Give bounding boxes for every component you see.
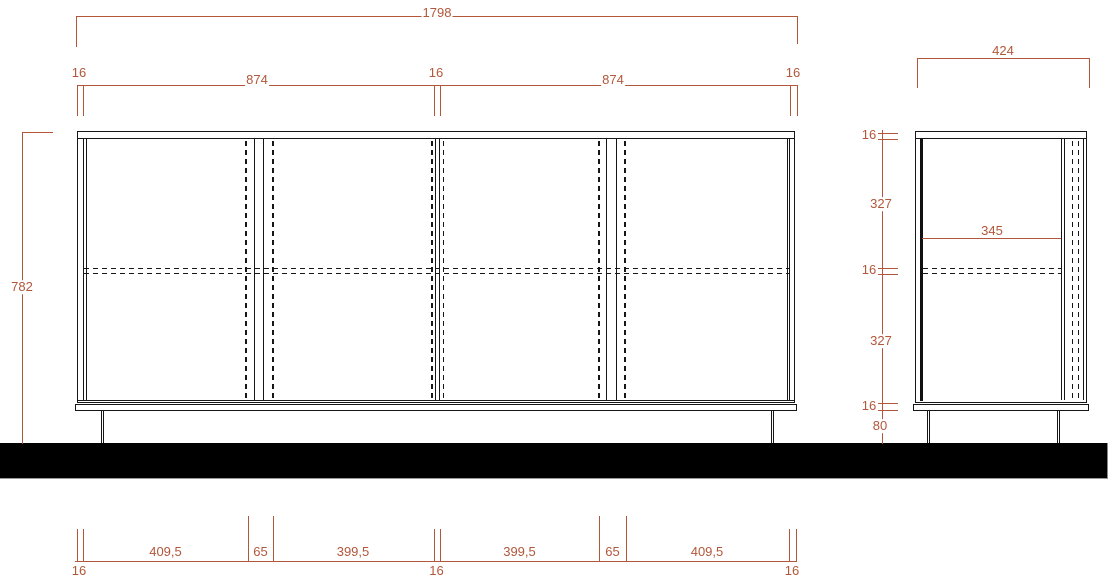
front-door4-right-edge: [787, 139, 788, 400]
dim-label-side-bottom-16: 16: [861, 399, 877, 413]
dim-tick-side-3b: [878, 410, 898, 411]
front-base-band: [75, 404, 797, 411]
front-centre-divider-right: [439, 139, 440, 400]
front-door3-right-edge: [606, 139, 607, 400]
dim-ext-depth-right: [1089, 58, 1090, 88]
front-door1-right-edge: [254, 139, 255, 400]
dim-tick-side-1b: [878, 139, 898, 140]
dim-ext-top-c1: [790, 85, 791, 116]
dim-ext-top-b1: [434, 85, 435, 116]
dim-label-side-lower-327: 327: [869, 334, 893, 348]
front-right-leg: [771, 410, 774, 443]
dim-ext-overall-left: [76, 16, 77, 47]
dim-label-top-874-right: 874: [601, 73, 625, 87]
dim-label-door1-width: 409,5: [148, 545, 183, 559]
dim-label-door2-width: 399,5: [336, 545, 371, 559]
front-shelf-hidden-line-top: [84, 268, 789, 270]
floor-line: [0, 443, 1108, 479]
dim-ext-bot-gap1r: [273, 516, 274, 561]
side-hidden-edge-1: [1072, 141, 1074, 400]
dim-label-gap1-width: 65: [252, 545, 268, 559]
front-door1-left-edge: [86, 139, 87, 400]
side-back-leg: [927, 410, 930, 443]
dim-label-side-shelf-16: 16: [861, 263, 877, 277]
dim-label-bot-16-right: 16: [784, 564, 800, 578]
side-back-panel: [920, 139, 923, 401]
dim-label-side-upper-327: 327: [869, 197, 893, 211]
dim-ext-overall-right: [797, 16, 798, 44]
front-hidden-edge-3: [431, 141, 433, 400]
front-centre-divider-left: [435, 139, 436, 400]
dim-label-top-16-centre: 16: [428, 66, 444, 80]
dim-ext-depth-left: [917, 58, 918, 88]
dim-label-door3-width: 399,5: [502, 545, 537, 559]
dim-ext-bot-b1: [434, 529, 435, 561]
front-hidden-edge-1: [245, 141, 247, 400]
side-base-band: [913, 404, 1089, 411]
dim-ext-bot-gap1l: [248, 516, 249, 561]
dim-label-bot-16-left: 16: [71, 564, 87, 578]
front-hidden-edge-6: [624, 141, 626, 400]
drawing-canvas: 1798 16 874 16 874 16 782 409,5 65 399,5…: [0, 0, 1113, 582]
dim-ext-top-a1: [77, 85, 78, 116]
dim-ext-bot-b2: [440, 529, 441, 561]
dim-label-door4-width: 409,5: [690, 545, 725, 559]
side-front-leg: [1057, 410, 1060, 443]
dim-ext-bot-a1: [77, 529, 78, 561]
dim-tick-side-2a: [878, 268, 898, 269]
side-hidden-edge-2: [1078, 141, 1080, 400]
front-door4-left-edge: [616, 139, 617, 400]
dim-label-overall-width: 1798: [422, 6, 453, 20]
front-hidden-edge-4: [443, 141, 445, 400]
dim-label-side-top-16: 16: [861, 128, 877, 142]
dim-tick-side-3a: [878, 403, 898, 404]
dim-tick-height-top: [22, 132, 53, 133]
dim-tick-side-1a: [878, 133, 898, 134]
front-left-leg: [101, 410, 104, 443]
dim-label-top-16-left: 16: [71, 66, 87, 80]
dim-line-side-heights: [882, 130, 883, 444]
front-hidden-edge-2: [272, 141, 274, 400]
front-bottom-panel-line: [78, 400, 794, 401]
dim-label-overall-height: 782: [10, 280, 34, 294]
dim-tick-side-2b: [878, 274, 898, 275]
dim-label-side-leg-80: 80: [872, 419, 888, 433]
dim-label-depth: 424: [991, 44, 1015, 58]
side-door-front-line-1: [1061, 139, 1062, 400]
dim-label-top-874-left: 874: [245, 73, 269, 87]
front-shelf-hidden-line-bottom: [84, 273, 789, 275]
side-door-front-line-2: [1064, 139, 1065, 400]
dim-label-bot-16-centre: 16: [428, 564, 444, 578]
dim-ext-bot-a2: [83, 529, 84, 561]
dim-ext-top-c2: [797, 85, 798, 116]
dim-ext-bot-c1: [789, 529, 790, 561]
side-wall-inner-line: [1083, 139, 1084, 400]
dim-ext-top-a2: [83, 85, 84, 116]
front-top-panel-line: [77, 138, 795, 139]
dim-label-top-16-right: 16: [785, 66, 801, 80]
front-right-wall-inner-line: [789, 139, 790, 400]
side-shelf-hidden-line-bottom: [923, 273, 1061, 275]
dim-label-interior-depth: 345: [980, 224, 1004, 238]
dim-ext-bot-gap2l: [599, 516, 600, 561]
dim-line-bottom-segments: [75, 561, 797, 562]
side-shelf-hidden-line-top: [923, 268, 1061, 270]
front-hidden-edge-5: [598, 141, 600, 400]
dim-ext-top-b2: [440, 85, 441, 116]
dim-ext-bot-c2: [796, 529, 797, 561]
dim-ext-bot-gap2r: [626, 516, 627, 561]
front-left-wall-inner-line: [83, 139, 84, 400]
dim-line-top-segments: [77, 85, 797, 86]
front-door2-left-edge: [263, 139, 264, 400]
dim-label-gap2-width: 65: [604, 545, 620, 559]
